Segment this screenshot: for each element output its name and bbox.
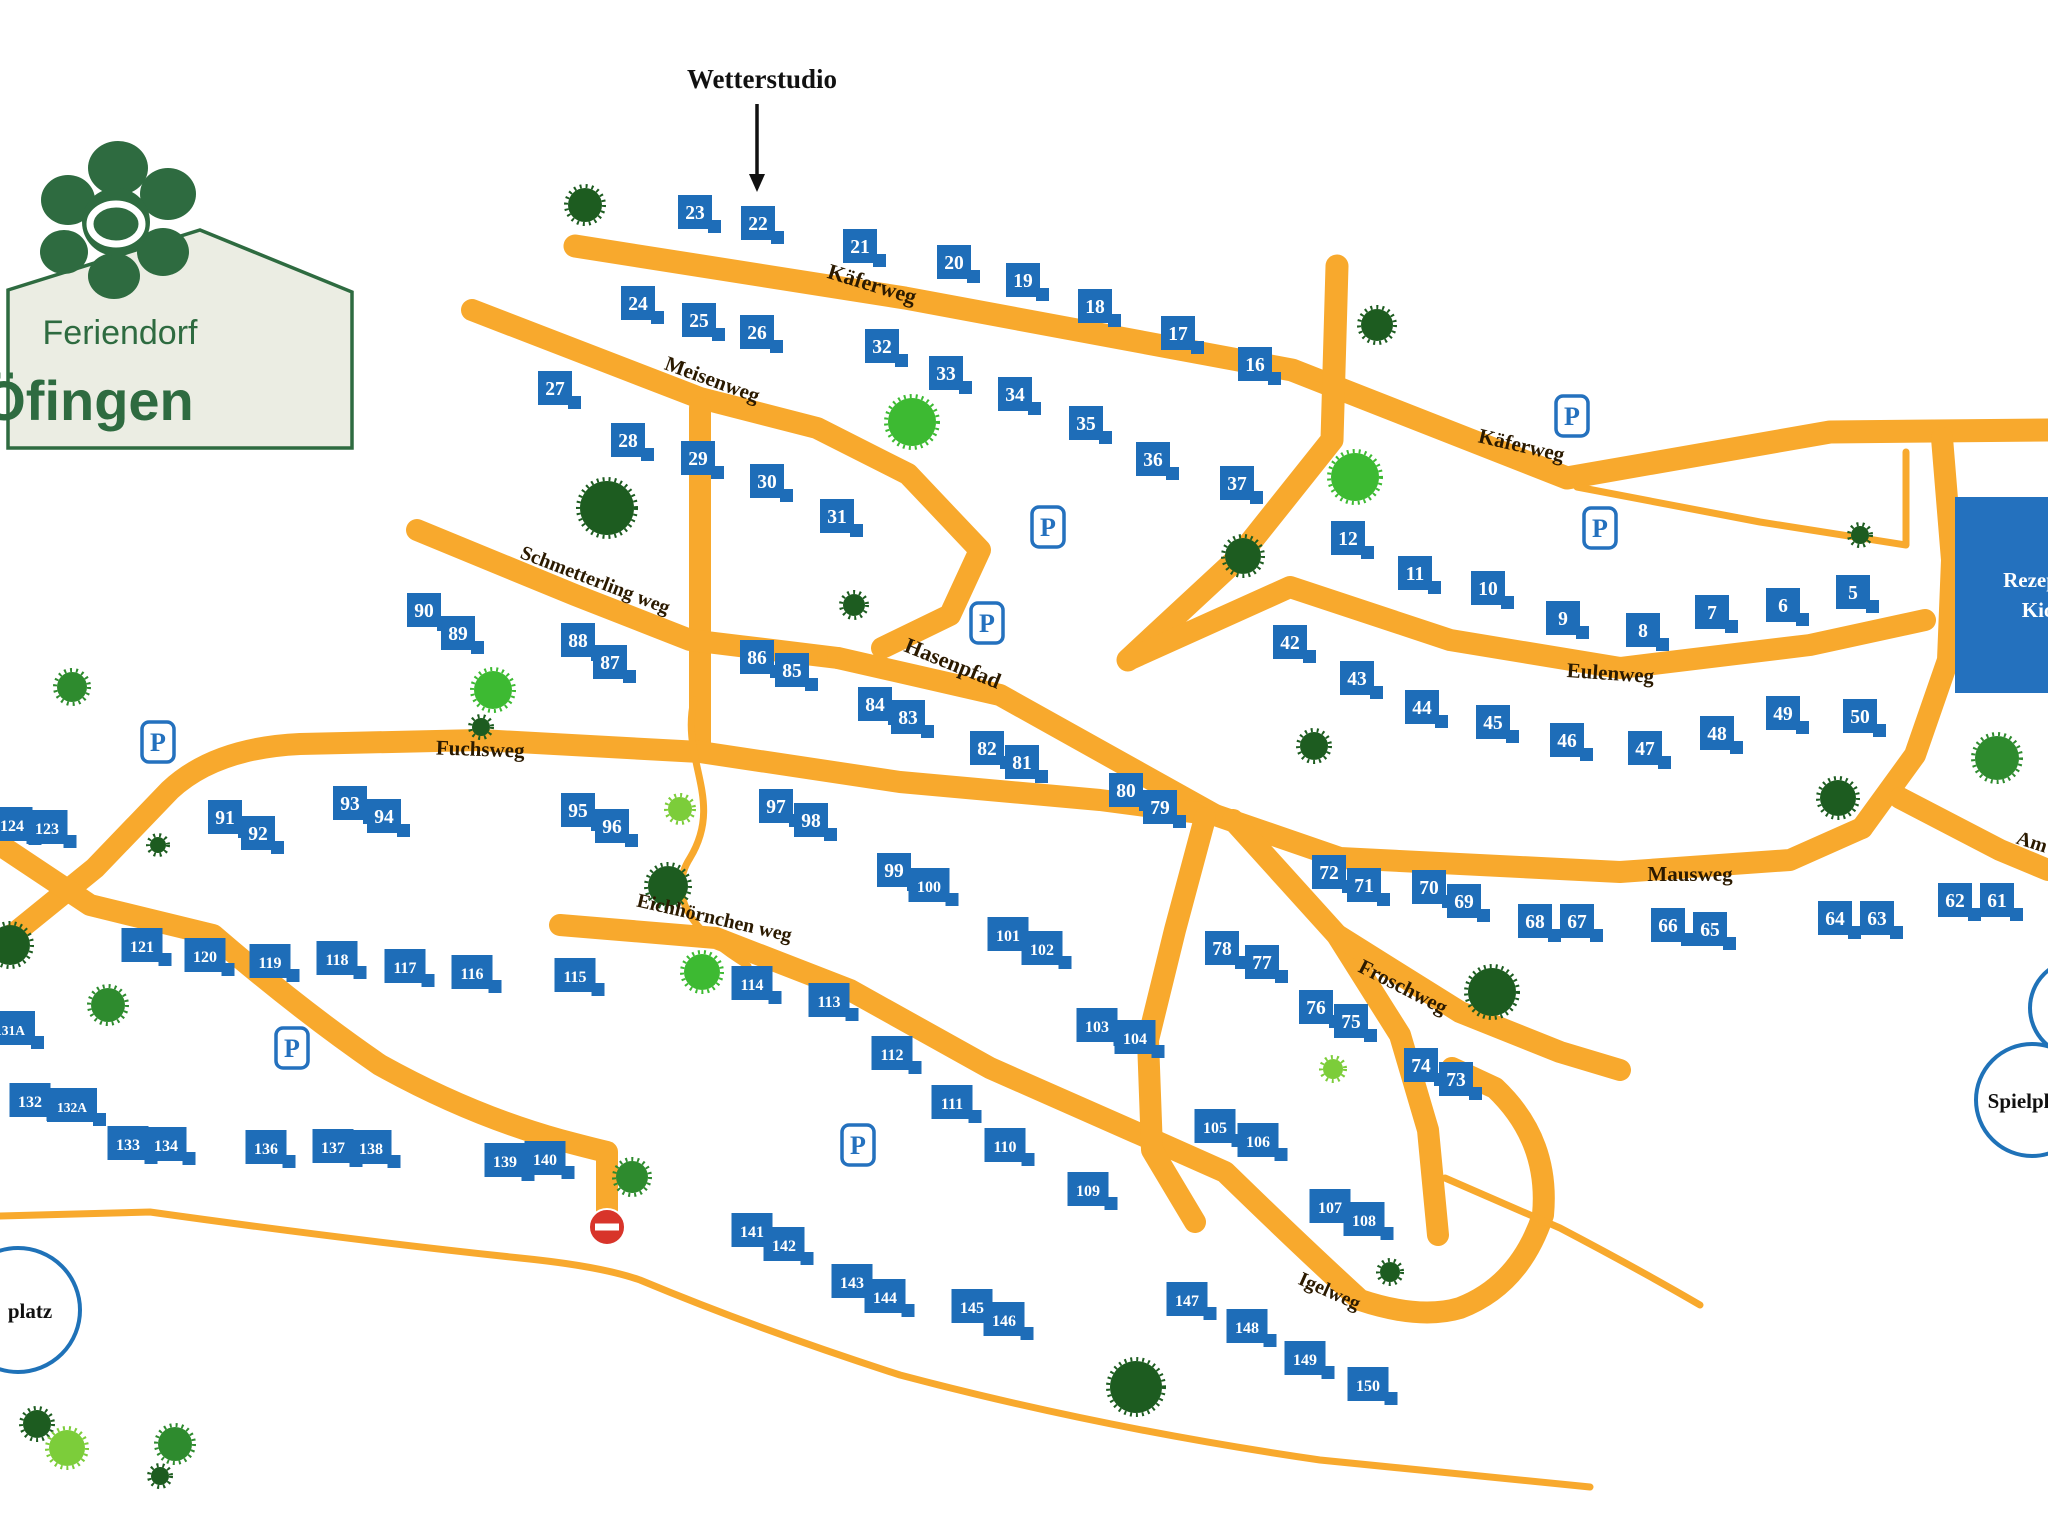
house-marker-131A: 131A bbox=[0, 1011, 44, 1049]
site-map: SpielplatzplatzRezeptionKiosk23222120191… bbox=[0, 0, 2048, 1538]
svg-text:143: 143 bbox=[840, 1275, 864, 1292]
house-marker-36: 36 bbox=[1136, 442, 1179, 480]
house-marker-109: 109 bbox=[1068, 1172, 1118, 1210]
tree-icon bbox=[1973, 734, 2021, 782]
svg-text:86: 86 bbox=[747, 648, 767, 669]
house-marker-34: 34 bbox=[998, 377, 1041, 415]
svg-text:100: 100 bbox=[917, 879, 941, 896]
svg-text:123: 123 bbox=[35, 821, 59, 838]
svg-text:101: 101 bbox=[996, 928, 1020, 945]
svg-text:109: 109 bbox=[1076, 1183, 1100, 1200]
house-marker-123: 123 bbox=[27, 810, 77, 848]
svg-text:132A: 132A bbox=[57, 1100, 87, 1115]
svg-text:124: 124 bbox=[0, 818, 24, 835]
svg-text:89: 89 bbox=[448, 624, 468, 645]
svg-text:22: 22 bbox=[748, 214, 768, 235]
house-marker-28: 28 bbox=[611, 423, 654, 461]
house-marker-116: 116 bbox=[452, 955, 502, 993]
tree-icon bbox=[148, 835, 168, 855]
svg-text:114: 114 bbox=[740, 977, 763, 994]
svg-text:99: 99 bbox=[884, 861, 904, 882]
kiosk-label: Kiosk bbox=[2022, 598, 2048, 622]
house-marker-69: 69 bbox=[1447, 884, 1490, 922]
svg-text:82: 82 bbox=[977, 739, 997, 760]
house-marker-68: 68 bbox=[1518, 904, 1561, 942]
svg-text:P: P bbox=[1592, 514, 1608, 543]
svg-text:47: 47 bbox=[1635, 739, 1655, 760]
svg-text:10: 10 bbox=[1478, 579, 1498, 600]
svg-text:46: 46 bbox=[1557, 731, 1577, 752]
house-marker-134: 134 bbox=[146, 1127, 196, 1165]
house-marker-98: 98 bbox=[794, 803, 837, 841]
svg-text:18: 18 bbox=[1085, 297, 1105, 318]
svg-text:140: 140 bbox=[533, 1152, 557, 1169]
house-marker-118: 118 bbox=[317, 941, 367, 979]
house-marker-61: 61 bbox=[1980, 883, 2023, 921]
tree-icon bbox=[0, 923, 32, 967]
house-marker-144: 144 bbox=[865, 1279, 915, 1317]
house-marker-25: 25 bbox=[682, 303, 725, 341]
house-marker-142: 142 bbox=[764, 1227, 814, 1265]
svg-text:37: 37 bbox=[1227, 474, 1247, 495]
tree-icon bbox=[47, 1428, 87, 1468]
tree-icon bbox=[472, 669, 514, 711]
svg-text:112: 112 bbox=[880, 1047, 903, 1064]
svg-text:7: 7 bbox=[1707, 603, 1717, 624]
svg-text:29: 29 bbox=[688, 449, 708, 470]
house-marker-71: 71 bbox=[1347, 868, 1390, 906]
tree-icon bbox=[55, 670, 89, 704]
svg-text:91: 91 bbox=[215, 808, 235, 829]
house-marker-50: 50 bbox=[1843, 699, 1886, 737]
house-marker-33: 33 bbox=[929, 356, 972, 394]
house-marker-65: 65 bbox=[1693, 912, 1736, 950]
house-marker-132A: 132A bbox=[47, 1088, 106, 1126]
house-marker-37: 37 bbox=[1220, 466, 1263, 504]
svg-text:P: P bbox=[850, 1131, 866, 1160]
tree-icon bbox=[1321, 1057, 1345, 1081]
house-marker-149: 149 bbox=[1285, 1341, 1335, 1379]
svg-text:107: 107 bbox=[1318, 1200, 1342, 1217]
svg-text:8: 8 bbox=[1638, 621, 1648, 642]
house-marker-23: 23 bbox=[678, 195, 721, 233]
svg-text:62: 62 bbox=[1945, 891, 1965, 912]
svg-text:42: 42 bbox=[1280, 633, 1300, 654]
house-marker-31: 31 bbox=[820, 499, 863, 537]
house-marker-148: 148 bbox=[1227, 1309, 1277, 1347]
tree-icon bbox=[1466, 966, 1518, 1018]
house-marker-83: 83 bbox=[891, 700, 934, 738]
house-marker-146: 146 bbox=[984, 1302, 1034, 1340]
svg-text:73: 73 bbox=[1446, 1070, 1466, 1091]
tree-icon bbox=[1849, 524, 1871, 546]
svg-text:137: 137 bbox=[321, 1140, 345, 1157]
tree-icon bbox=[1298, 730, 1330, 762]
house-marker-147: 147 bbox=[1167, 1282, 1217, 1320]
house-marker-29: 29 bbox=[681, 441, 724, 479]
svg-text:96: 96 bbox=[602, 817, 622, 838]
house-marker-12: 12 bbox=[1331, 521, 1374, 559]
svg-text:20: 20 bbox=[944, 253, 964, 274]
platz-label: platz bbox=[8, 1299, 52, 1323]
svg-text:48: 48 bbox=[1707, 724, 1727, 745]
svg-text:90: 90 bbox=[414, 601, 434, 622]
parking-icon: P bbox=[276, 1028, 308, 1068]
house-marker-10: 10 bbox=[1471, 571, 1514, 609]
svg-text:70: 70 bbox=[1419, 878, 1439, 899]
svg-text:148: 148 bbox=[1235, 1320, 1259, 1337]
parking-icon: P bbox=[1584, 508, 1616, 548]
svg-text:85: 85 bbox=[782, 661, 802, 682]
svg-text:119: 119 bbox=[258, 955, 281, 972]
house-marker-78: 78 bbox=[1205, 931, 1248, 969]
svg-text:35: 35 bbox=[1076, 414, 1096, 435]
tree-icon bbox=[149, 1465, 171, 1487]
svg-text:79: 79 bbox=[1150, 798, 1170, 819]
svg-text:93: 93 bbox=[340, 794, 360, 815]
house-marker-30: 30 bbox=[750, 464, 793, 502]
svg-text:34: 34 bbox=[1005, 385, 1025, 406]
tree-icon bbox=[156, 1425, 194, 1463]
house-marker-63: 63 bbox=[1860, 901, 1903, 939]
svg-text:120: 120 bbox=[193, 949, 217, 966]
house-marker-138: 138 bbox=[351, 1130, 401, 1168]
house-marker-21: 21 bbox=[843, 229, 886, 267]
svg-text:98: 98 bbox=[801, 811, 821, 832]
svg-text:64: 64 bbox=[1825, 909, 1845, 930]
svg-text:32: 32 bbox=[872, 337, 892, 358]
svg-text:71: 71 bbox=[1354, 876, 1374, 897]
house-marker-18: 18 bbox=[1078, 289, 1121, 327]
svg-text:30: 30 bbox=[757, 472, 777, 493]
resort-logo: Feriendorf Öfingen bbox=[0, 141, 352, 448]
parking-icon: P bbox=[971, 603, 1003, 643]
house-marker-89: 89 bbox=[441, 616, 484, 654]
house-marker-64: 64 bbox=[1818, 901, 1861, 939]
svg-text:92: 92 bbox=[248, 824, 268, 845]
svg-text:63: 63 bbox=[1867, 909, 1887, 930]
svg-text:138: 138 bbox=[359, 1141, 383, 1158]
svg-text:83: 83 bbox=[898, 708, 918, 729]
house-marker-150: 150 bbox=[1348, 1367, 1398, 1405]
tree-icon bbox=[578, 479, 636, 537]
house-marker-47: 47 bbox=[1628, 731, 1671, 769]
house-marker-119: 119 bbox=[250, 944, 300, 982]
wetterstudio-annotation: Wetterstudio bbox=[687, 64, 837, 192]
svg-text:108: 108 bbox=[1352, 1213, 1376, 1230]
house-marker-22: 22 bbox=[741, 206, 784, 244]
svg-text:26: 26 bbox=[747, 323, 767, 344]
svg-text:44: 44 bbox=[1412, 698, 1432, 719]
svg-text:117: 117 bbox=[393, 960, 416, 977]
house-marker-81: 81 bbox=[1005, 745, 1048, 783]
svg-text:43: 43 bbox=[1347, 669, 1367, 690]
house-marker-87: 87 bbox=[593, 645, 636, 683]
parking-icon: P bbox=[1556, 396, 1588, 436]
house-marker-62: 62 bbox=[1938, 883, 1981, 921]
house-marker-7: 7 bbox=[1695, 595, 1738, 633]
svg-text:6: 6 bbox=[1778, 596, 1788, 617]
arrow-head-icon bbox=[749, 174, 765, 192]
svg-text:104: 104 bbox=[1123, 1031, 1147, 1048]
house-marker-75: 75 bbox=[1334, 1004, 1377, 1042]
house-marker-19: 19 bbox=[1006, 263, 1049, 301]
house-marker-6: 6 bbox=[1766, 588, 1809, 626]
svg-text:97: 97 bbox=[766, 797, 786, 818]
house-marker-66: 66 bbox=[1651, 908, 1694, 946]
svg-text:36: 36 bbox=[1143, 450, 1163, 471]
svg-text:67: 67 bbox=[1567, 912, 1587, 933]
tree-icon bbox=[89, 986, 127, 1024]
svg-text:94: 94 bbox=[374, 807, 394, 828]
svg-text:102: 102 bbox=[1030, 942, 1054, 959]
tree-icon bbox=[614, 1159, 650, 1195]
svg-text:66: 66 bbox=[1658, 916, 1678, 937]
svg-text:27: 27 bbox=[545, 379, 565, 400]
house-marker-92: 92 bbox=[241, 816, 284, 854]
house-marker-100: 100 bbox=[909, 868, 959, 906]
svg-text:74: 74 bbox=[1411, 1056, 1431, 1077]
tree-icon bbox=[682, 952, 722, 992]
rezeption-kiosk-building: RezeptionKiosk bbox=[1955, 497, 2048, 693]
svg-text:16: 16 bbox=[1245, 355, 1265, 376]
house-marker-20: 20 bbox=[937, 245, 980, 283]
tree-icon bbox=[1818, 778, 1858, 818]
svg-text:145: 145 bbox=[960, 1300, 984, 1317]
street-label-fuchsweg: Fuchsweg bbox=[436, 735, 526, 762]
svg-text:111: 111 bbox=[941, 1096, 963, 1113]
svg-text:142: 142 bbox=[772, 1238, 796, 1255]
svg-text:21: 21 bbox=[850, 237, 870, 258]
svg-text:147: 147 bbox=[1175, 1293, 1199, 1310]
svg-text:72: 72 bbox=[1319, 863, 1339, 884]
svg-text:69: 69 bbox=[1454, 892, 1474, 913]
svg-text:25: 25 bbox=[689, 311, 709, 332]
map-canvas: SpielplatzplatzRezeptionKiosk23222120191… bbox=[0, 0, 2048, 1538]
svg-text:75: 75 bbox=[1341, 1012, 1361, 1033]
house-marker-42: 42 bbox=[1273, 625, 1316, 663]
tree-icon bbox=[566, 186, 604, 224]
svg-text:80: 80 bbox=[1116, 781, 1136, 802]
svg-text:P: P bbox=[1040, 513, 1056, 542]
svg-text:23: 23 bbox=[685, 203, 705, 224]
svg-text:33: 33 bbox=[936, 364, 956, 385]
svg-text:134: 134 bbox=[154, 1138, 178, 1155]
svg-text:133: 133 bbox=[116, 1137, 140, 1154]
svg-text:132: 132 bbox=[18, 1094, 42, 1111]
tree-icon bbox=[886, 396, 938, 448]
house-marker-48: 48 bbox=[1700, 716, 1743, 754]
house-marker-105: 105 bbox=[1195, 1109, 1245, 1147]
house-marker-11: 11 bbox=[1398, 556, 1441, 594]
svg-text:150: 150 bbox=[1356, 1378, 1380, 1395]
rezeption-label: Rezeption bbox=[2003, 568, 2048, 592]
house-marker-115: 115 bbox=[555, 958, 605, 996]
svg-text:121: 121 bbox=[130, 939, 154, 956]
svg-text:31: 31 bbox=[827, 507, 847, 528]
tree-icon bbox=[1108, 1359, 1164, 1415]
house-marker-94: 94 bbox=[367, 799, 410, 837]
house-marker-24: 24 bbox=[621, 286, 664, 324]
house-marker-106: 106 bbox=[1238, 1123, 1288, 1161]
svg-text:146: 146 bbox=[992, 1313, 1016, 1330]
house-marker-102: 102 bbox=[1022, 931, 1072, 969]
svg-text:118: 118 bbox=[325, 952, 348, 969]
tree-icon bbox=[21, 1408, 53, 1440]
tree-icon bbox=[1359, 307, 1395, 343]
house-marker-46: 46 bbox=[1550, 723, 1593, 761]
house-marker-117: 117 bbox=[385, 949, 435, 987]
svg-text:136: 136 bbox=[254, 1141, 278, 1158]
house-marker-45: 45 bbox=[1476, 705, 1519, 743]
svg-text:9: 9 bbox=[1558, 609, 1568, 630]
svg-text:12: 12 bbox=[1338, 529, 1358, 550]
svg-text:131A: 131A bbox=[0, 1023, 25, 1038]
road-eulenweg bbox=[1128, 587, 1925, 668]
house-marker-35: 35 bbox=[1069, 406, 1112, 444]
svg-text:149: 149 bbox=[1293, 1352, 1317, 1369]
svg-text:78: 78 bbox=[1212, 939, 1232, 960]
svg-text:28: 28 bbox=[618, 431, 638, 452]
house-marker-43: 43 bbox=[1340, 661, 1383, 699]
house-marker-26: 26 bbox=[740, 315, 783, 353]
house-marker-27: 27 bbox=[538, 371, 581, 409]
svg-text:5: 5 bbox=[1848, 583, 1858, 604]
svg-text:45: 45 bbox=[1483, 713, 1503, 734]
house-marker-112: 112 bbox=[872, 1036, 922, 1074]
svg-text:24: 24 bbox=[628, 294, 648, 315]
house-marker-17: 17 bbox=[1161, 316, 1204, 354]
house-marker-44: 44 bbox=[1405, 690, 1448, 728]
logo-line2: Öfingen bbox=[0, 369, 194, 432]
svg-text:19: 19 bbox=[1013, 271, 1033, 292]
svg-text:103: 103 bbox=[1085, 1019, 1109, 1036]
svg-text:49: 49 bbox=[1773, 704, 1793, 725]
house-marker-96: 96 bbox=[595, 809, 638, 847]
svg-text:87: 87 bbox=[600, 653, 620, 674]
svg-text:115: 115 bbox=[563, 969, 586, 986]
house-marker-9: 9 bbox=[1546, 601, 1589, 639]
no-entry-sign bbox=[589, 1209, 625, 1245]
svg-text:139: 139 bbox=[493, 1154, 517, 1171]
tree-icon bbox=[841, 592, 867, 618]
road-kaeferweg bbox=[575, 246, 2048, 478]
svg-text:50: 50 bbox=[1850, 707, 1870, 728]
house-marker-110: 110 bbox=[985, 1128, 1035, 1166]
svg-text:11: 11 bbox=[1406, 564, 1424, 585]
house-marker-49: 49 bbox=[1766, 696, 1809, 734]
street-label-eulenweg: Eulenweg bbox=[1566, 658, 1655, 688]
svg-text:68: 68 bbox=[1525, 912, 1545, 933]
house-marker-77: 77 bbox=[1245, 945, 1288, 983]
svg-text:105: 105 bbox=[1203, 1120, 1227, 1137]
parking-icon: P bbox=[142, 722, 174, 762]
svg-text:141: 141 bbox=[740, 1224, 764, 1241]
svg-text:77: 77 bbox=[1252, 953, 1272, 974]
svg-text:81: 81 bbox=[1012, 753, 1032, 774]
svg-text:P: P bbox=[150, 728, 166, 757]
house-marker-108: 108 bbox=[1344, 1202, 1394, 1240]
svg-text:17: 17 bbox=[1168, 324, 1188, 345]
svg-text:P: P bbox=[1564, 402, 1580, 431]
tree-icon bbox=[1378, 1260, 1402, 1284]
svg-text:76: 76 bbox=[1306, 998, 1326, 1019]
platz-area: platz bbox=[0, 1248, 80, 1372]
house-marker-136: 136 bbox=[246, 1130, 296, 1168]
svg-text:110: 110 bbox=[993, 1139, 1016, 1156]
tree-icon bbox=[666, 795, 694, 823]
svg-text:113: 113 bbox=[817, 994, 840, 1011]
svg-text:106: 106 bbox=[1246, 1134, 1270, 1151]
svg-text:88: 88 bbox=[568, 631, 588, 652]
parking-icon: P bbox=[842, 1125, 874, 1165]
logo-line1: Feriendorf bbox=[43, 314, 199, 352]
parking-icon: P bbox=[1032, 507, 1064, 547]
house-marker-8: 8 bbox=[1626, 613, 1669, 651]
svg-text:144: 144 bbox=[873, 1290, 897, 1307]
svg-text:84: 84 bbox=[865, 695, 885, 716]
svg-text:116: 116 bbox=[460, 966, 483, 983]
house-marker-67: 67 bbox=[1560, 904, 1603, 942]
house-marker-111: 111 bbox=[932, 1085, 982, 1123]
tree-icon bbox=[1329, 451, 1381, 503]
spielplatz-area: Spielplatz bbox=[1976, 960, 2048, 1156]
svg-text:P: P bbox=[979, 609, 995, 638]
svg-text:61: 61 bbox=[1987, 891, 2007, 912]
svg-text:P: P bbox=[284, 1034, 300, 1063]
wetterstudio-label: Wetterstudio bbox=[687, 64, 837, 94]
svg-text:95: 95 bbox=[568, 801, 588, 822]
svg-text:65: 65 bbox=[1700, 920, 1720, 941]
house-marker-5: 5 bbox=[1836, 575, 1879, 613]
house-marker-32: 32 bbox=[865, 329, 908, 367]
street-label-mausweg: Mausweg bbox=[1647, 862, 1733, 886]
spielplatz-label: Spielplatz bbox=[1988, 1089, 2048, 1113]
